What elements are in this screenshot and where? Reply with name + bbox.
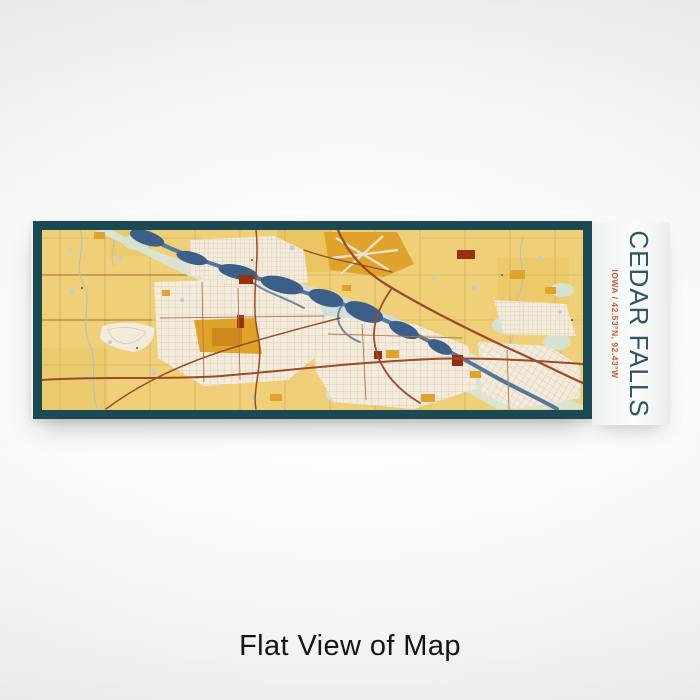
map-print-flat xyxy=(31,221,592,419)
map-title: CEDAR FALLS xyxy=(626,230,652,417)
wrap-label-rotor: CEDAR FALLS IOWA / 42.53°N, 92.43°W xyxy=(610,222,652,425)
city-map-graphic xyxy=(42,230,583,410)
view-caption: Flat View of Map xyxy=(0,630,700,663)
map-coordinates: IOWA / 42.53°N, 92.43°W xyxy=(610,269,619,378)
product-mockup-scene: CEDAR FALLS IOWA / 42.53°N, 92.43°W Flat… xyxy=(0,0,700,700)
wrap-label-panel: CEDAR FALLS IOWA / 42.53°N, 92.43°W xyxy=(592,222,670,425)
